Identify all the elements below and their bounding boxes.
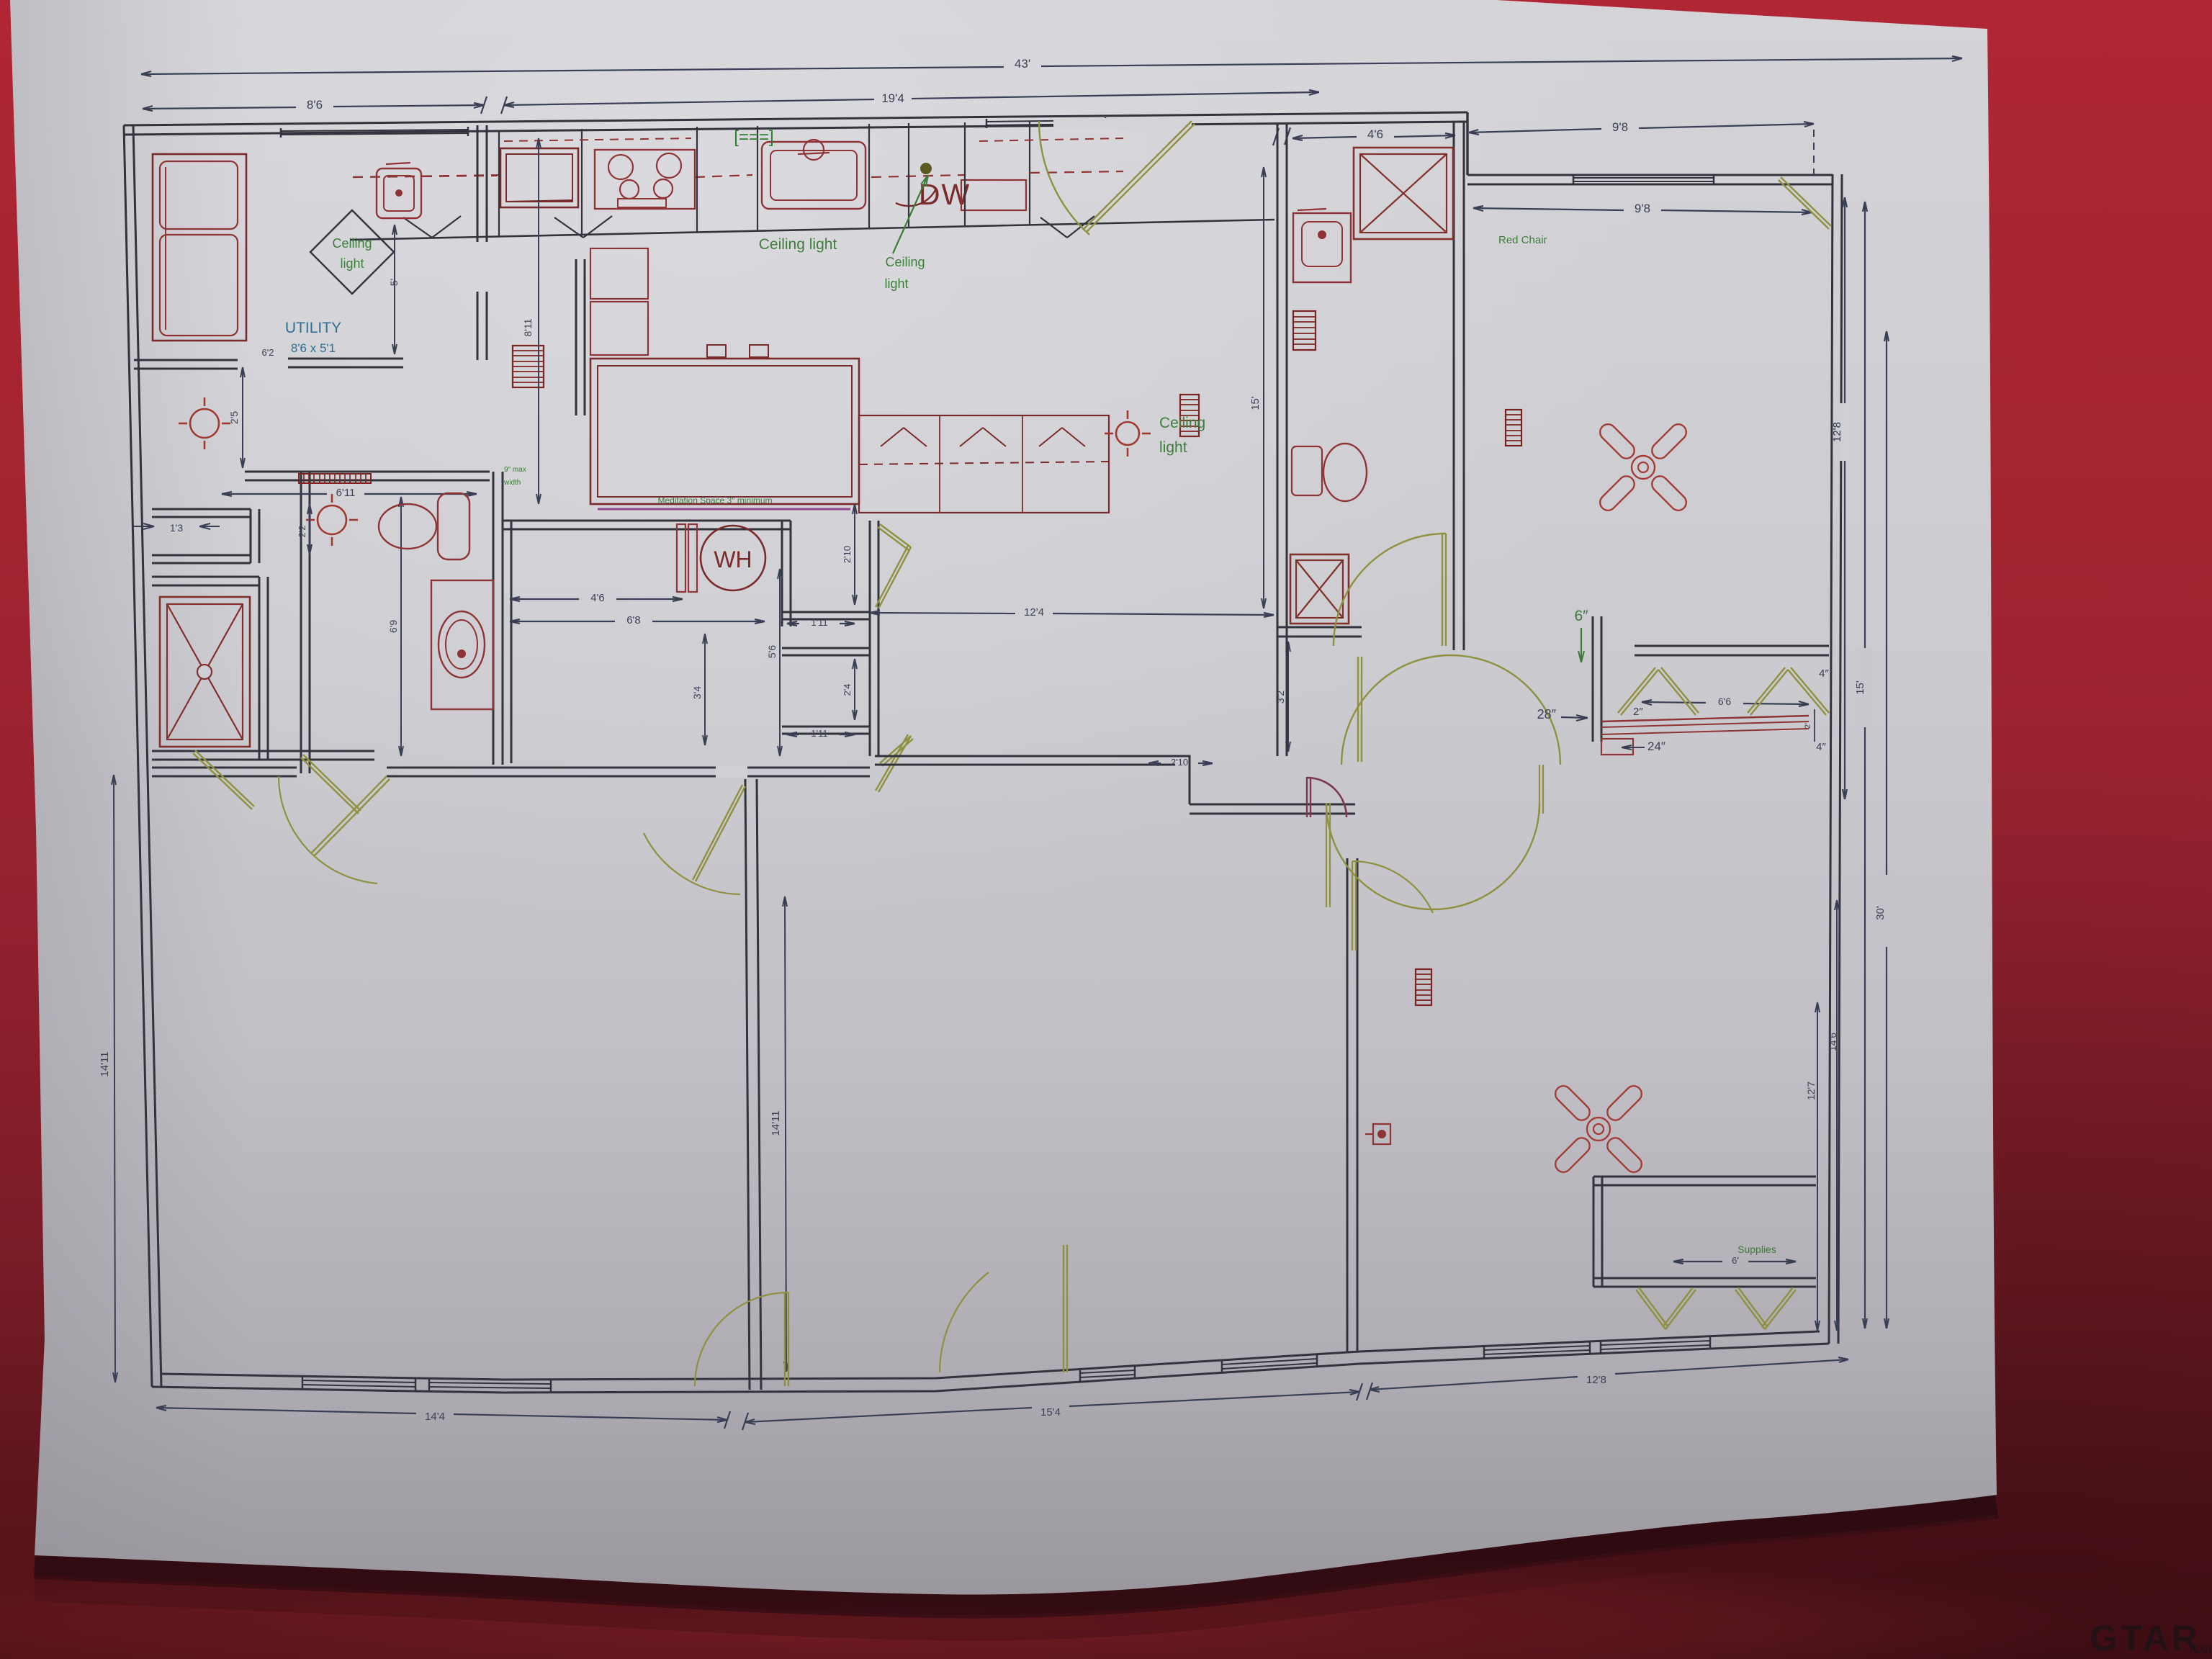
svg-text:Supplies: Supplies [1737, 1244, 1776, 1255]
svg-text:2″: 2″ [1633, 706, 1643, 718]
svg-text:2'10: 2'10 [1171, 757, 1188, 768]
svg-text:2'10: 2'10 [842, 546, 853, 563]
svg-text:3'2: 3'2 [1274, 691, 1286, 703]
svg-text:28″: 28″ [1537, 707, 1557, 721]
svg-text:4'6: 4'6 [590, 592, 605, 604]
svg-text:4″: 4″ [1819, 667, 1829, 680]
svg-text:UTILITY: UTILITY [285, 320, 341, 336]
svg-text:4'6: 4'6 [1367, 127, 1383, 141]
svg-text:Ceiling: Ceiling [332, 236, 372, 251]
svg-text:6'2: 6'2 [262, 347, 274, 358]
svg-text:14'11: 14'11 [99, 1051, 111, 1076]
svg-text:15': 15' [1249, 396, 1262, 410]
svg-text:light: light [884, 276, 908, 291]
svg-text:5': 5' [388, 279, 400, 286]
svg-text:6″: 6″ [1574, 608, 1588, 624]
svg-text:Meditation Space 3″ minimum: Meditation Space 3″ minimum [658, 495, 773, 505]
svg-text:8'11: 8'11 [522, 318, 534, 336]
svg-text:2'5: 2'5 [228, 411, 240, 424]
svg-text:2': 2' [1804, 723, 1812, 729]
svg-text:19'4: 19'4 [881, 91, 904, 105]
svg-text:6': 6' [1732, 1255, 1739, 1266]
svg-text:1'11: 1'11 [811, 617, 827, 628]
svg-text:3'4: 3'4 [691, 686, 703, 699]
svg-text:6'8: 6'8 [626, 614, 641, 626]
svg-text:width: width [503, 479, 521, 487]
svg-text:12'8: 12'8 [1586, 1374, 1606, 1386]
svg-text:4″: 4″ [1816, 741, 1826, 753]
svg-text:Red Chair: Red Chair [1498, 234, 1547, 246]
svg-text:Ceiling: Ceiling [1159, 415, 1205, 431]
svg-text:GTAR: GTAR [2090, 1618, 2200, 1658]
svg-text:6'6: 6'6 [1718, 696, 1731, 707]
svg-text:6'9: 6'9 [387, 620, 399, 633]
svg-text:15'4: 15'4 [1040, 1406, 1061, 1419]
svg-text:6'11: 6'11 [336, 487, 356, 499]
svg-text:[===]: [===] [734, 127, 773, 147]
svg-text:Ceiling: Ceiling [885, 255, 925, 269]
svg-text:9″ max: 9″ max [504, 466, 526, 474]
svg-text:2'2: 2'2 [297, 526, 307, 538]
svg-text:8'6: 8'6 [307, 98, 323, 112]
svg-text:WH: WH [714, 547, 752, 572]
svg-text:9'8: 9'8 [1635, 202, 1650, 215]
svg-text:14'6: 14'6 [1827, 1033, 1838, 1051]
svg-text:30': 30' [1874, 906, 1887, 920]
svg-text:43': 43' [1015, 57, 1030, 71]
svg-text:.com: .com [2189, 1641, 2212, 1657]
svg-text:15': 15' [1854, 680, 1866, 695]
svg-text:2'4: 2'4 [842, 684, 853, 696]
svg-text:12'4: 12'4 [1024, 606, 1044, 619]
svg-text:5'6: 5'6 [766, 645, 778, 658]
svg-text:Ceiling light: Ceiling light [759, 236, 837, 253]
svg-text:8'6 x 5'1: 8'6 x 5'1 [291, 341, 336, 355]
svg-text:24″: 24″ [1647, 739, 1665, 753]
svg-text:light: light [340, 256, 364, 271]
svg-text:1'3: 1'3 [170, 522, 183, 534]
svg-text:14'11: 14'11 [770, 1110, 782, 1136]
svg-text:9'8: 9'8 [1612, 120, 1628, 134]
svg-text:1'11: 1'11 [811, 728, 827, 739]
svg-text:12'8: 12'8 [1831, 422, 1843, 442]
svg-text:12'7: 12'7 [1805, 1082, 1817, 1100]
svg-text:14'4: 14'4 [425, 1411, 445, 1423]
svg-text:light: light [1159, 439, 1187, 456]
